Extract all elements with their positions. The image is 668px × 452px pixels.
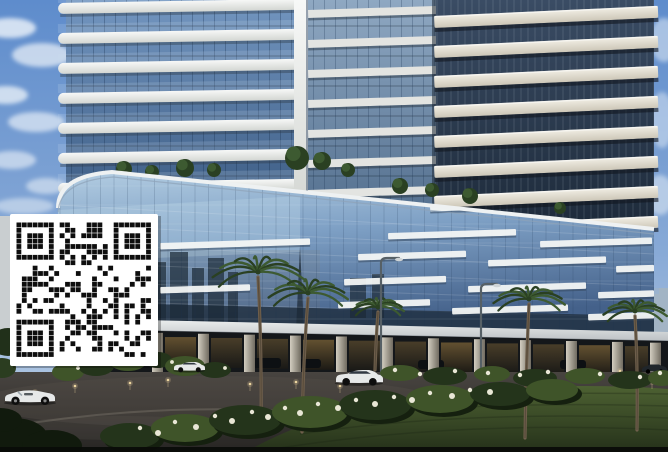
mid-tower [294,0,437,220]
bush [380,365,420,381]
flower [449,393,455,399]
flower [170,360,174,364]
cloud [8,112,64,132]
bush [565,368,605,384]
building-render-photo [0,0,668,452]
flower [546,370,550,374]
roof-shrub [207,163,221,177]
bush [100,423,160,449]
bush [423,367,467,385]
flower [428,391,432,395]
flower [223,366,227,370]
bush [608,371,652,389]
right-tower [434,0,658,242]
flower [265,414,271,420]
flower [638,375,642,379]
bush [272,396,348,428]
flower [453,369,457,373]
flower [297,410,303,416]
bush [406,385,474,413]
colonnade-pillar [244,335,255,378]
roof-shrub [341,163,355,177]
roof-shrub [554,202,566,214]
bush [474,366,510,382]
roof-shrub [462,188,478,204]
qr-code [10,214,161,368]
bush [209,405,281,435]
flower [393,368,397,372]
bush [151,414,219,442]
flower [518,373,522,377]
flower [598,372,602,376]
flower [283,406,287,410]
flower [173,420,177,424]
flower [155,430,161,436]
flower [316,402,320,406]
flower [658,371,662,375]
roof-shrub [392,178,408,194]
flower [193,424,199,430]
roof-shrub [285,146,309,170]
flower [487,389,493,395]
parked-car [253,358,281,368]
flower [138,426,142,430]
facade-stripe [616,265,654,273]
flower [418,372,422,376]
flower [354,398,358,402]
bush [526,379,578,401]
screenshot-root [0,0,668,452]
flower [372,401,378,407]
bush [470,382,530,406]
colonnade-pillar [290,336,301,378]
roof-shrub [176,159,194,177]
flower [392,395,396,399]
flower [409,397,415,403]
flower [229,418,235,424]
roof-shrub [313,152,331,170]
colonnade-pillar [336,336,347,377]
flower [335,405,341,411]
flower [486,371,490,375]
roof-shrub [425,183,439,197]
flower [250,410,254,414]
flower [213,414,217,418]
flower [468,388,472,392]
